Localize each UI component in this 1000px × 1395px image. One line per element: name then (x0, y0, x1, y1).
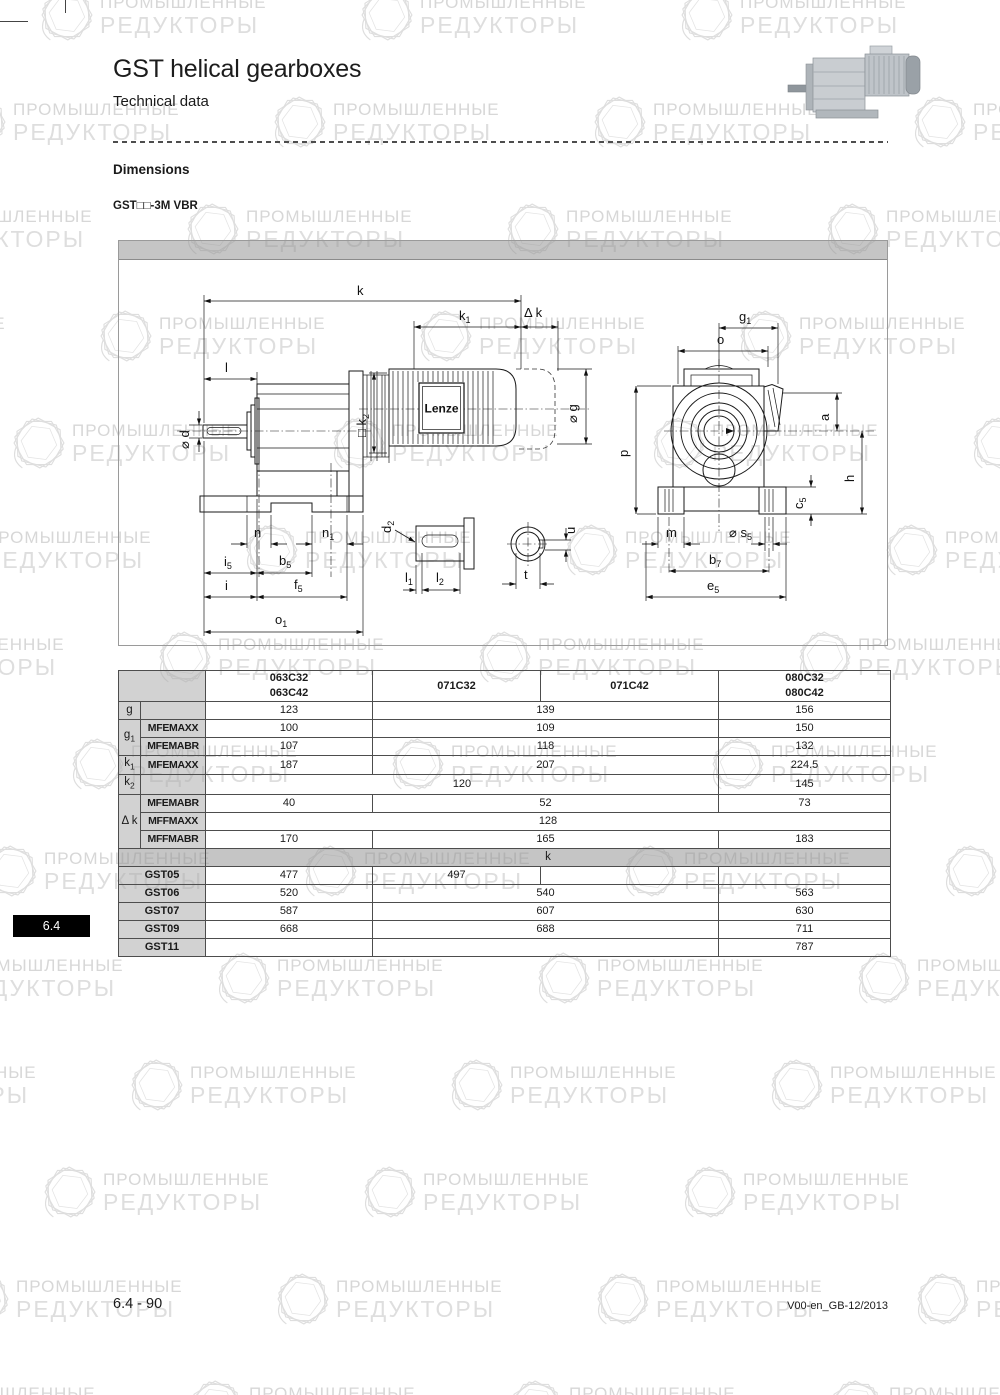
row-label-k1: k1 (119, 756, 141, 775)
sublabel: MFFMABR (141, 830, 206, 848)
value-cell: 711 (719, 920, 891, 938)
row-g: g 123 139 156 (119, 702, 891, 720)
dim-label-l: l (225, 360, 228, 375)
crop-mark-horizontal (0, 21, 28, 22)
document-code: V00-en_GB-12/2013 (688, 1300, 888, 1312)
row-k1: k1 MFEMAXX 187 207 224.5 (119, 756, 891, 775)
row-label-gst06: GST06 (119, 884, 206, 902)
dim-label-k1: k1 (459, 308, 471, 325)
dim-label-c5: c5 (791, 497, 808, 509)
dim-label-t: t (524, 567, 528, 582)
value-cell: 118 (373, 738, 719, 756)
value-cell: 187 (206, 756, 373, 775)
sublabel: MFFMAXX (141, 812, 206, 830)
dim-label-d: ⌀ d (177, 430, 192, 449)
row-label-gst07: GST07 (119, 902, 206, 920)
dim-label-k2: □ k2 (354, 414, 371, 437)
dim-label-i: i (225, 578, 228, 593)
value-cell: 100 (206, 720, 373, 738)
row-label-g1: g1 (119, 720, 141, 756)
value-cell: 132 (719, 738, 891, 756)
value-cell: 607 (373, 902, 719, 920)
dim-label-d2: d2 (379, 521, 396, 533)
empty-cell (119, 848, 206, 866)
value-cell (373, 938, 719, 956)
dim-label-n1: n1 (322, 525, 334, 542)
row-gst06: GST06 520 540 563 (119, 884, 891, 902)
value-cell (541, 866, 719, 884)
value-cell: 497 (373, 866, 541, 884)
chapter-tab: 6.4 (13, 915, 90, 937)
empty-cell (141, 775, 206, 794)
col-header-071c32: 071C32 (373, 671, 541, 702)
sublabel: MFEMABR (141, 738, 206, 756)
value-cell: 688 (373, 920, 719, 938)
row-gst11: GST11 787 (119, 938, 891, 956)
value-cell (719, 866, 891, 884)
dim-label-g: ⌀ g (565, 404, 580, 423)
row-gst09: GST09 668 688 711 (119, 920, 891, 938)
row-gst07: GST07 587 607 630 (119, 902, 891, 920)
value-cell: 477 (206, 866, 373, 884)
dim-label-delta-k: Δ k (524, 305, 543, 320)
dim-label-b5: b5 (279, 553, 291, 570)
dim-label-s5: ⌀ s5 (729, 525, 752, 542)
dim-label-l1: l1 (405, 570, 413, 587)
value-cell: 787 (719, 938, 891, 956)
value-cell: 40 (206, 794, 373, 812)
value-cell: 207 (373, 756, 719, 775)
value-cell: 123 (206, 702, 373, 720)
drawing-frame: Lenze k k1 Δ k l (118, 240, 888, 646)
row-label-gst11: GST11 (119, 938, 206, 956)
dim-label-o1: o1 (275, 612, 287, 629)
value-cell: 540 (373, 884, 719, 902)
value-cell: 52 (373, 794, 719, 812)
dim-label-b7: b7 (709, 552, 721, 569)
dim-label-m: m (666, 525, 677, 540)
row-label-gst05: GST05 (119, 866, 206, 884)
value-cell: 139 (373, 702, 719, 720)
dimensions-table: 063C32063C42 071C32 071C42 080C32080C42 … (118, 670, 891, 957)
sublabel: MFEMAXX (141, 720, 206, 738)
value-cell: 563 (719, 884, 891, 902)
value-cell: 183 (719, 830, 891, 848)
sublabel: MFEMABR (141, 794, 206, 812)
value-cell: 145 (719, 775, 891, 794)
k-band-label: k (206, 848, 891, 866)
dim-label-f5: f5 (294, 577, 303, 594)
value-cell: 120 (206, 775, 719, 794)
dim-label-u: u (563, 527, 578, 534)
page-title: GST helical gearboxes (113, 55, 361, 84)
row-label-g: g (119, 702, 141, 720)
row-label-delta-k: Δ k (119, 794, 141, 848)
dimensions-heading: Dimensions (113, 162, 190, 177)
empty-cell (141, 702, 206, 720)
drawing-title-band (119, 241, 887, 259)
col-header-071c42: 071C42 (541, 671, 719, 702)
row-label-k2: k2 (119, 775, 141, 794)
dim-label-l2: l2 (436, 570, 444, 587)
dashed-divider (113, 141, 888, 143)
dimension-drawing: Lenze k k1 Δ k l (119, 241, 887, 645)
dim-label-o: o (717, 332, 724, 347)
header-row: 063C32063C42 071C32 071C42 080C32080C42 (119, 671, 891, 702)
value-cell: 630 (719, 902, 891, 920)
row-dk-mfemabr: Δ k MFEMABR 40 52 73 (119, 794, 891, 812)
page-subtitle: Technical data (113, 93, 209, 110)
value-cell (206, 938, 373, 956)
row-k2: k2 120 145 (119, 775, 891, 794)
row-dk-mffmabr: MFFMABR 170 165 183 (119, 830, 891, 848)
value-cell: 73 (719, 794, 891, 812)
value-cell: 107 (206, 738, 373, 756)
col-header-063: 063C32063C42 (206, 671, 373, 702)
page-number: 6.4 - 90 (113, 1296, 162, 1312)
row-dk-mffmaxx: MFFMAXX 128 (119, 812, 891, 830)
value-cell: 587 (206, 902, 373, 920)
dim-label-k: k (357, 283, 364, 298)
dim-label-g1: g1 (739, 309, 751, 326)
row-k-band: k (119, 848, 891, 866)
row-label-gst09: GST09 (119, 920, 206, 938)
value-cell: 224.5 (719, 756, 891, 775)
row-gst05: GST05 477 497 (119, 866, 891, 884)
value-cell: 165 (373, 830, 719, 848)
lenze-logo: Lenze (424, 402, 458, 416)
value-cell: 109 (373, 720, 719, 738)
col-header-080: 080C32080C42 (719, 671, 891, 702)
value-cell: 170 (206, 830, 373, 848)
value-cell: 150 (719, 720, 891, 738)
value-cell: 156 (719, 702, 891, 720)
dim-label-e5: e5 (707, 578, 719, 595)
dim-label-p: p (616, 450, 631, 457)
crop-mark-vertical (65, 0, 66, 13)
sublabel: MFEMAXX (141, 756, 206, 775)
dim-label-i5: i5 (224, 554, 232, 571)
model-designation: GST□□-3M VBR (113, 200, 198, 212)
value-cell: 668 (206, 920, 373, 938)
gearmotor-photo (786, 42, 938, 122)
dim-label-h: h (842, 475, 857, 482)
empty-header-cell (119, 671, 206, 702)
dim-label-n: n (254, 525, 261, 540)
row-g1-mfemabr: MFEMABR 107 118 132 (119, 738, 891, 756)
row-g1-mfemaxx: g1 MFEMAXX 100 109 150 (119, 720, 891, 738)
dim-label-a: a (817, 413, 832, 421)
value-cell: 520 (206, 884, 373, 902)
value-cell: 128 (206, 812, 891, 830)
